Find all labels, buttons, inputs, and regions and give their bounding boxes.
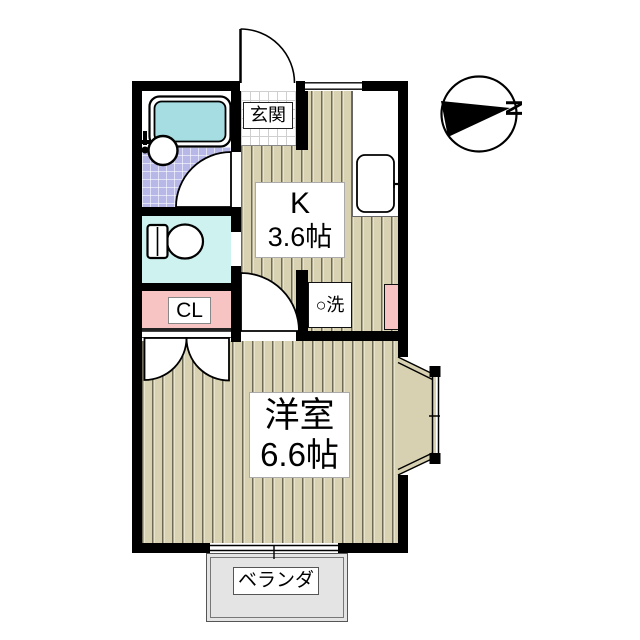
bathroom-upper-floor (142, 91, 231, 147)
closet-door-track (142, 331, 231, 338)
wall-column-b (231, 216, 241, 232)
kitchen-label-line1: K (290, 187, 310, 222)
entrance-door-swing (241, 29, 295, 83)
kitchen-window (305, 81, 362, 91)
wall-right-b (398, 475, 408, 553)
veranda-label-text: ベランダ (238, 571, 314, 592)
wall-column-a (231, 91, 241, 152)
veranda-label: ベランダ (233, 567, 319, 595)
wall-bath-bottom (142, 207, 241, 216)
floor-plan: N 玄関 K 3.6帖 CL ○洗 洋室 6.6帖 ベランダ (0, 0, 640, 640)
wall-kitchen-room (296, 331, 398, 341)
washer-label-text: ○洗 (316, 296, 345, 316)
western-room-label-line1: 洋室 (264, 396, 334, 436)
entrance-label-text: 玄関 (250, 106, 286, 126)
wall-right-a (398, 81, 408, 357)
entrance-label: 玄関 (243, 102, 293, 129)
wall-bottom-a (132, 543, 210, 553)
bathroom-door-gap (231, 152, 241, 207)
wall-top-b (296, 81, 305, 91)
closet-label-text: CL (176, 299, 203, 322)
wall-top-a (132, 81, 240, 91)
compass-north-label: N (501, 100, 527, 117)
closet-label: CL (168, 297, 211, 324)
veranda-sliding-door (210, 543, 338, 553)
kitchen-counter (352, 91, 398, 217)
wall-entrance-stub (296, 91, 308, 150)
wall-column-c (231, 266, 241, 342)
bathroom-floor (142, 147, 231, 207)
toilet-door-gap (231, 232, 241, 266)
washer-label: ○洗 (309, 295, 351, 317)
wall-left (132, 81, 142, 553)
compass: N (441, 77, 527, 152)
refrigerator-space (384, 284, 398, 330)
bay-window (398, 357, 441, 475)
toilet-room-floor (142, 216, 231, 283)
kitchen-label-line2: 3.6帖 (268, 222, 333, 253)
western-room-label: 洋室 6.6帖 (249, 392, 350, 478)
room-door-gap (241, 331, 296, 341)
wall-toilet-bottom (142, 283, 241, 291)
compass-needle-icon (441, 101, 510, 137)
western-room-label-line2: 6.6帖 (260, 436, 339, 474)
kitchen-label: K 3.6帖 (255, 182, 345, 258)
